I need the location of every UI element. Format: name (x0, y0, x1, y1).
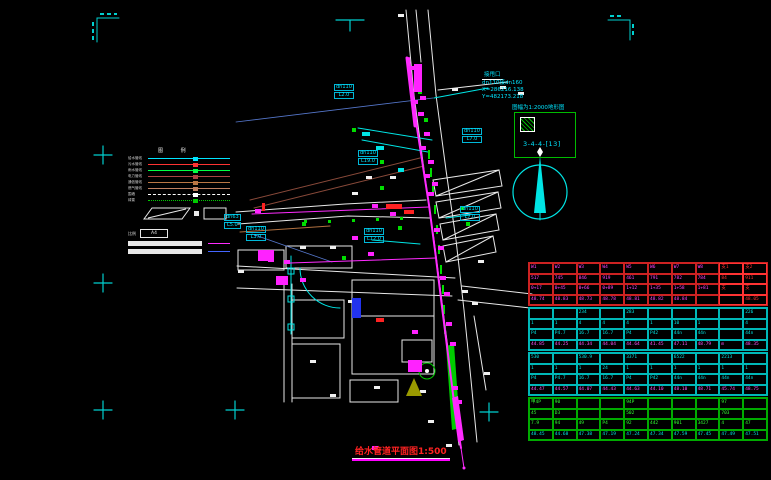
table-cell: 47.59 (672, 430, 696, 441)
table-cell: 1 (529, 319, 553, 330)
legend-scale-box: A4 (140, 229, 168, 238)
table-cell: 48.35 (743, 340, 767, 351)
table-cell: 41.45 (648, 340, 672, 351)
detail-code: 3-4-4-[13] (523, 140, 561, 148)
table-cell (672, 308, 696, 319)
pipe-label-size: dn110 (246, 226, 266, 233)
table-cell (696, 398, 720, 409)
table-group: W1W2W3W4W5W6W7W8支1支251774584691946179178… (528, 262, 768, 306)
table-cell: 4 (624, 319, 648, 330)
table-cell (696, 295, 720, 306)
pipe-label: dn110L7.0 (462, 128, 482, 144)
legend-line-sample (148, 170, 230, 171)
table-cell: 1 (553, 319, 577, 330)
table-cell: 530 (529, 353, 553, 364)
table-cell (672, 398, 696, 409)
table-cell: 16.7 (600, 329, 624, 340)
callout-x: X=286216.138 (482, 87, 524, 94)
table-cell: 461 (624, 274, 648, 285)
table-cell: 0+66 (577, 284, 601, 295)
table-cell: 1 (672, 364, 696, 375)
legend-shapes (128, 205, 228, 223)
legend-blue-line (208, 251, 230, 252)
table-cell: 1+81 (696, 284, 720, 295)
table-cell: 16.7 (600, 374, 624, 385)
legend-road-bar (128, 241, 202, 246)
table-cell: 47.49 (719, 430, 743, 441)
table-cell: 1+12 (624, 284, 648, 295)
legend-header: 图 例 (158, 147, 230, 155)
table-cell: 48.75 (743, 385, 767, 396)
table-cell: 1 (553, 364, 577, 375)
legend-line-marker (193, 193, 198, 197)
table-cell: 47.51 (743, 430, 767, 441)
table-cell (553, 308, 577, 319)
pipe-label-length: L7.0 (462, 136, 482, 143)
legend-item-label: 绿篱 (128, 198, 148, 203)
table-cell: P4 (624, 329, 648, 340)
table-cell: 745 (553, 274, 577, 285)
legend-line-marker (193, 163, 198, 167)
legend-item-label: 围墙 (128, 192, 148, 197)
legend-item-label: 雨水管线 (128, 168, 148, 173)
legend-items: 给水管线污水管线雨水管线电力管线通信管线燃气管线围墙绿篱 (128, 155, 230, 203)
table-group: 530530.933716522221311124111111P4P4.716.… (528, 352, 768, 396)
hatch-swatch-icon (520, 117, 535, 132)
legend-line-sample (148, 176, 230, 177)
legend-item-label: 燃气管线 (128, 186, 148, 191)
coord-table: W1W2W3W4W5W6W7W8支1支251774584691946179178… (528, 262, 768, 442)
table-cell: 44n (743, 329, 767, 340)
pipe-label-length: L2.0 (334, 92, 354, 99)
table-cell: 94 (553, 419, 577, 430)
legend-scale-label: 比例 (128, 231, 136, 237)
pipe-label-length: L5.0 (224, 222, 241, 229)
table-cell: 6522 (672, 353, 696, 364)
table-cell: 48.82 (648, 295, 672, 306)
table-cell: 44n (696, 329, 720, 340)
table-cell: 84 (719, 274, 743, 285)
table-cell: 1+58 (672, 284, 696, 295)
table-cell: 48.74 (529, 295, 553, 306)
table-cell: 94P (624, 398, 648, 409)
table-cell: 45.74 (719, 385, 743, 396)
table-cell (600, 409, 624, 420)
table-cell: 44n (696, 374, 720, 385)
pipe-label-length: L19.0 (358, 158, 378, 165)
table-cell (719, 319, 743, 330)
detail-note: 图幅为1:2000地形图 (512, 103, 564, 111)
table-cell: 517 (529, 274, 553, 285)
sheet-corner-marks (92, 13, 634, 42)
legend-line-sample (148, 200, 230, 201)
table-cell: 47.19 (600, 430, 624, 441)
legend-line-sample (148, 188, 230, 189)
table-cell (743, 409, 767, 420)
legend-line-marker (193, 199, 198, 203)
table-cell: 47.34 (648, 430, 672, 441)
table-cell: 530.9 (577, 353, 601, 364)
table-cell: 7.9 (529, 419, 553, 430)
table-cell (719, 295, 743, 306)
table-cell: 90 (553, 398, 577, 409)
table-cell: P42 (648, 374, 672, 385)
legend-scale-row: 比例 A4 (128, 229, 230, 238)
table-cell: 911 (743, 274, 767, 285)
table-cell: 1 (577, 364, 601, 375)
table-cell: 48.79 (696, 340, 720, 351)
callout-y: Y=482173.218 (482, 94, 524, 101)
table-cell: 44.47 (529, 385, 553, 396)
table-cell: 3371 (624, 353, 648, 364)
table-cell: 49 (577, 419, 601, 430)
table-cell: W2 (553, 263, 577, 274)
table-cell: 502 (624, 409, 648, 420)
table-cell: 1+35 (648, 284, 672, 295)
pipe-label: dn63L5.0 (224, 214, 241, 230)
pipe-label-length: L3.0 (246, 234, 266, 241)
table-cell: 16.7 (577, 374, 601, 385)
table-cell: P4 (600, 419, 624, 430)
table-cell: 283 (624, 308, 648, 319)
table-cell (648, 398, 672, 409)
legend: 图 例 给水管线污水管线雨水管线电力管线通信管线燃气管线围墙绿篱 比例 A4 (128, 147, 230, 257)
legend-line-sample (148, 164, 230, 165)
table-cell: 92 (624, 419, 648, 430)
table-cell: 44.07 (577, 385, 601, 396)
table-cell: 支 (719, 284, 743, 295)
detail-box: 3-4-4-[13] (514, 112, 576, 158)
table-cell: 47 (743, 419, 767, 430)
table-cell: 4 (719, 419, 743, 430)
table-cell: 44n (743, 374, 767, 385)
table-cell: m (719, 340, 743, 351)
table-cell: W5 (624, 263, 648, 274)
legend-line-sample (148, 158, 230, 159)
pipe-label: dn110L19.0 (358, 150, 378, 166)
pipe-label-length: L12.0 (364, 236, 384, 243)
legend-line-marker (193, 187, 198, 191)
callout-spec: dn110接dn160 (482, 80, 524, 87)
legend-item-label: 通信管线 (128, 180, 148, 185)
table-cell (696, 308, 720, 319)
legend-line-marker (193, 169, 198, 173)
table-cell: P4 (529, 329, 553, 340)
table-cell (696, 353, 720, 364)
table-cell: 甲4P (529, 398, 553, 409)
table-cell: 791 (648, 274, 672, 285)
drawing-sheet: 图 例 给水管线污水管线雨水管线电力管线通信管线燃气管线围墙绿篱 比例 A4 接… (0, 0, 771, 480)
coordinate-callout: 接甩口 dn110接dn160 X=286216.138 Y=482173.21… (482, 72, 524, 101)
table-cell: 44.85 (529, 340, 553, 351)
legend-line-marker (193, 175, 198, 179)
pipe-label-size: dn110 (462, 128, 482, 135)
table-cell: 782 (672, 274, 696, 285)
table-cell: 1 (648, 319, 672, 330)
table-cell: 97 (719, 398, 743, 409)
table-cell (719, 308, 743, 319)
table-cell: W3 (577, 263, 601, 274)
table-cell: 4 (577, 319, 601, 330)
pipe-label-length: L7.0 (460, 214, 480, 221)
pipe-label-size: dn110 (358, 150, 378, 157)
table-cell: 1 (624, 364, 648, 375)
water-pipes-layer (252, 58, 466, 470)
table-cell: P4.7 (553, 374, 577, 385)
table-cell: 44.04 (600, 340, 624, 351)
table-cell: 846 (577, 274, 601, 285)
drawing-title-text: 给水管道平面图 (355, 447, 418, 457)
pipe-label-size: dn63 (224, 214, 241, 221)
table-cell: 47.45 (696, 430, 720, 441)
table-cell: 1 (696, 364, 720, 375)
table-cell: 48.10 (672, 385, 696, 396)
table-cell: 44.10 (648, 385, 672, 396)
table-cell: 1 (719, 364, 743, 375)
table-cell (743, 398, 767, 409)
table-cell (743, 353, 767, 364)
table-cell: 44.57 (553, 385, 577, 396)
table-cell: 44.64 (624, 340, 648, 351)
table-cell: 48.81 (624, 295, 648, 306)
table-cell: 44n (719, 374, 743, 385)
legend-line-marker (193, 181, 198, 185)
table-cell: 1 (696, 319, 720, 330)
table-cell (553, 353, 577, 364)
table-cell: W8 (696, 263, 720, 274)
table-cell: 支 (743, 284, 767, 295)
pipe-label: dn110L7.0 (460, 206, 480, 222)
legend-road-samples (128, 241, 230, 254)
table-cell: 3427 (696, 419, 720, 430)
table-cell: 1 (648, 364, 672, 375)
table-cell: P4 (624, 374, 648, 385)
table-cell: 1 (743, 364, 767, 375)
legend-magenta-line (208, 243, 230, 244)
table-cell: 44n (672, 329, 696, 340)
table-cell: 48.83 (553, 295, 577, 306)
table-cell: 901 (672, 419, 696, 430)
drawing-title: 给水管道平面图1:500 (352, 444, 450, 459)
legend-line-marker (193, 157, 198, 161)
table-group: 甲4P9094P9745D35027037.99449P492442901342… (528, 397, 768, 441)
table-cell: 24 (600, 364, 624, 375)
table-cell (600, 353, 624, 364)
table-cell: 784 (696, 274, 720, 285)
table-group: 2342832261144411014P4P4.716.716.7P4P4244… (528, 307, 768, 351)
table-cell: 0+89 (600, 284, 624, 295)
table-cell: 44n (672, 374, 696, 385)
pipe-label: dn110L2.0 (334, 84, 354, 100)
legend-line-sample (148, 182, 230, 183)
table-cell (696, 409, 720, 420)
table-cell: 1 (529, 364, 553, 375)
table-cell (672, 409, 696, 420)
legend-line-sample (148, 194, 230, 195)
table-cell: 4 (743, 319, 767, 330)
table-cell: 44.34 (577, 340, 601, 351)
table-cell: 48.84 (672, 295, 696, 306)
table-cell (648, 308, 672, 319)
table-cell: 16.7 (577, 329, 601, 340)
hydrant-symbol (406, 378, 422, 396)
table-cell (600, 308, 624, 319)
table-cell: P4 (529, 374, 553, 385)
table-cell: P42 (648, 329, 672, 340)
table-cell: 48.05 (743, 295, 767, 306)
table-cell: 45 (529, 409, 553, 420)
legend-item-label: 给水管线 (128, 156, 148, 161)
pipe-label: dn110L12.0 (364, 228, 384, 244)
legend-item: 绿篱 (128, 197, 230, 203)
table-cell: 4 (600, 319, 624, 330)
table-cell: 226 (743, 308, 767, 319)
valve-symbol (352, 298, 361, 318)
legend-road-bar (128, 249, 202, 254)
table-cell: 48.45 (529, 430, 553, 441)
table-cell: 2213 (719, 353, 743, 364)
legend-item-label: 电力管线 (128, 174, 148, 179)
table-cell: 10 (672, 319, 696, 330)
table-cell: 47.24 (624, 430, 648, 441)
table-cell: 703 (719, 409, 743, 420)
table-cell (600, 398, 624, 409)
table-cell: 48.78 (600, 295, 624, 306)
table-cell (719, 329, 743, 340)
table-cell: 47.38 (577, 430, 601, 441)
pipe-label: dn110L3.0 (246, 226, 266, 242)
table-cell: W6 (648, 263, 672, 274)
table-cell: W4 (600, 263, 624, 274)
table-cell: W1 (529, 263, 553, 274)
table-cell (529, 308, 553, 319)
legend-item-label: 污水管线 (128, 162, 148, 167)
table-cell: 47.11 (672, 340, 696, 351)
table-cell: 48.73 (577, 295, 601, 306)
pipe-label-size: dn110 (460, 206, 480, 213)
table-cell (577, 398, 601, 409)
table-cell: 44.25 (553, 340, 577, 351)
table-cell (577, 409, 601, 420)
table-cell: 0+45 (553, 284, 577, 295)
pipe-label-size: dn110 (364, 228, 384, 235)
pipe-label-size: dn110 (334, 84, 354, 91)
table-cell: 44.43 (600, 385, 624, 396)
table-cell: 支2 (743, 263, 767, 274)
table-cell: W7 (672, 263, 696, 274)
table-cell: 48.71 (696, 385, 720, 396)
table-cell: 0+17 (529, 284, 553, 295)
table-cell: 442 (648, 419, 672, 430)
table-cell: 44.63 (624, 385, 648, 396)
table-cell (648, 353, 672, 364)
table-cell: 234 (577, 308, 601, 319)
table-cell (648, 409, 672, 420)
callout-note: 接甩口 (482, 72, 503, 80)
table-cell: 919 (600, 274, 624, 285)
drawing-title-scale: 1:500 (418, 447, 447, 457)
table-cell: 44.68 (553, 430, 577, 441)
table-cell: D3 (553, 409, 577, 420)
table-cell: 支1 (719, 263, 743, 274)
table-cell: P4.7 (553, 329, 577, 340)
